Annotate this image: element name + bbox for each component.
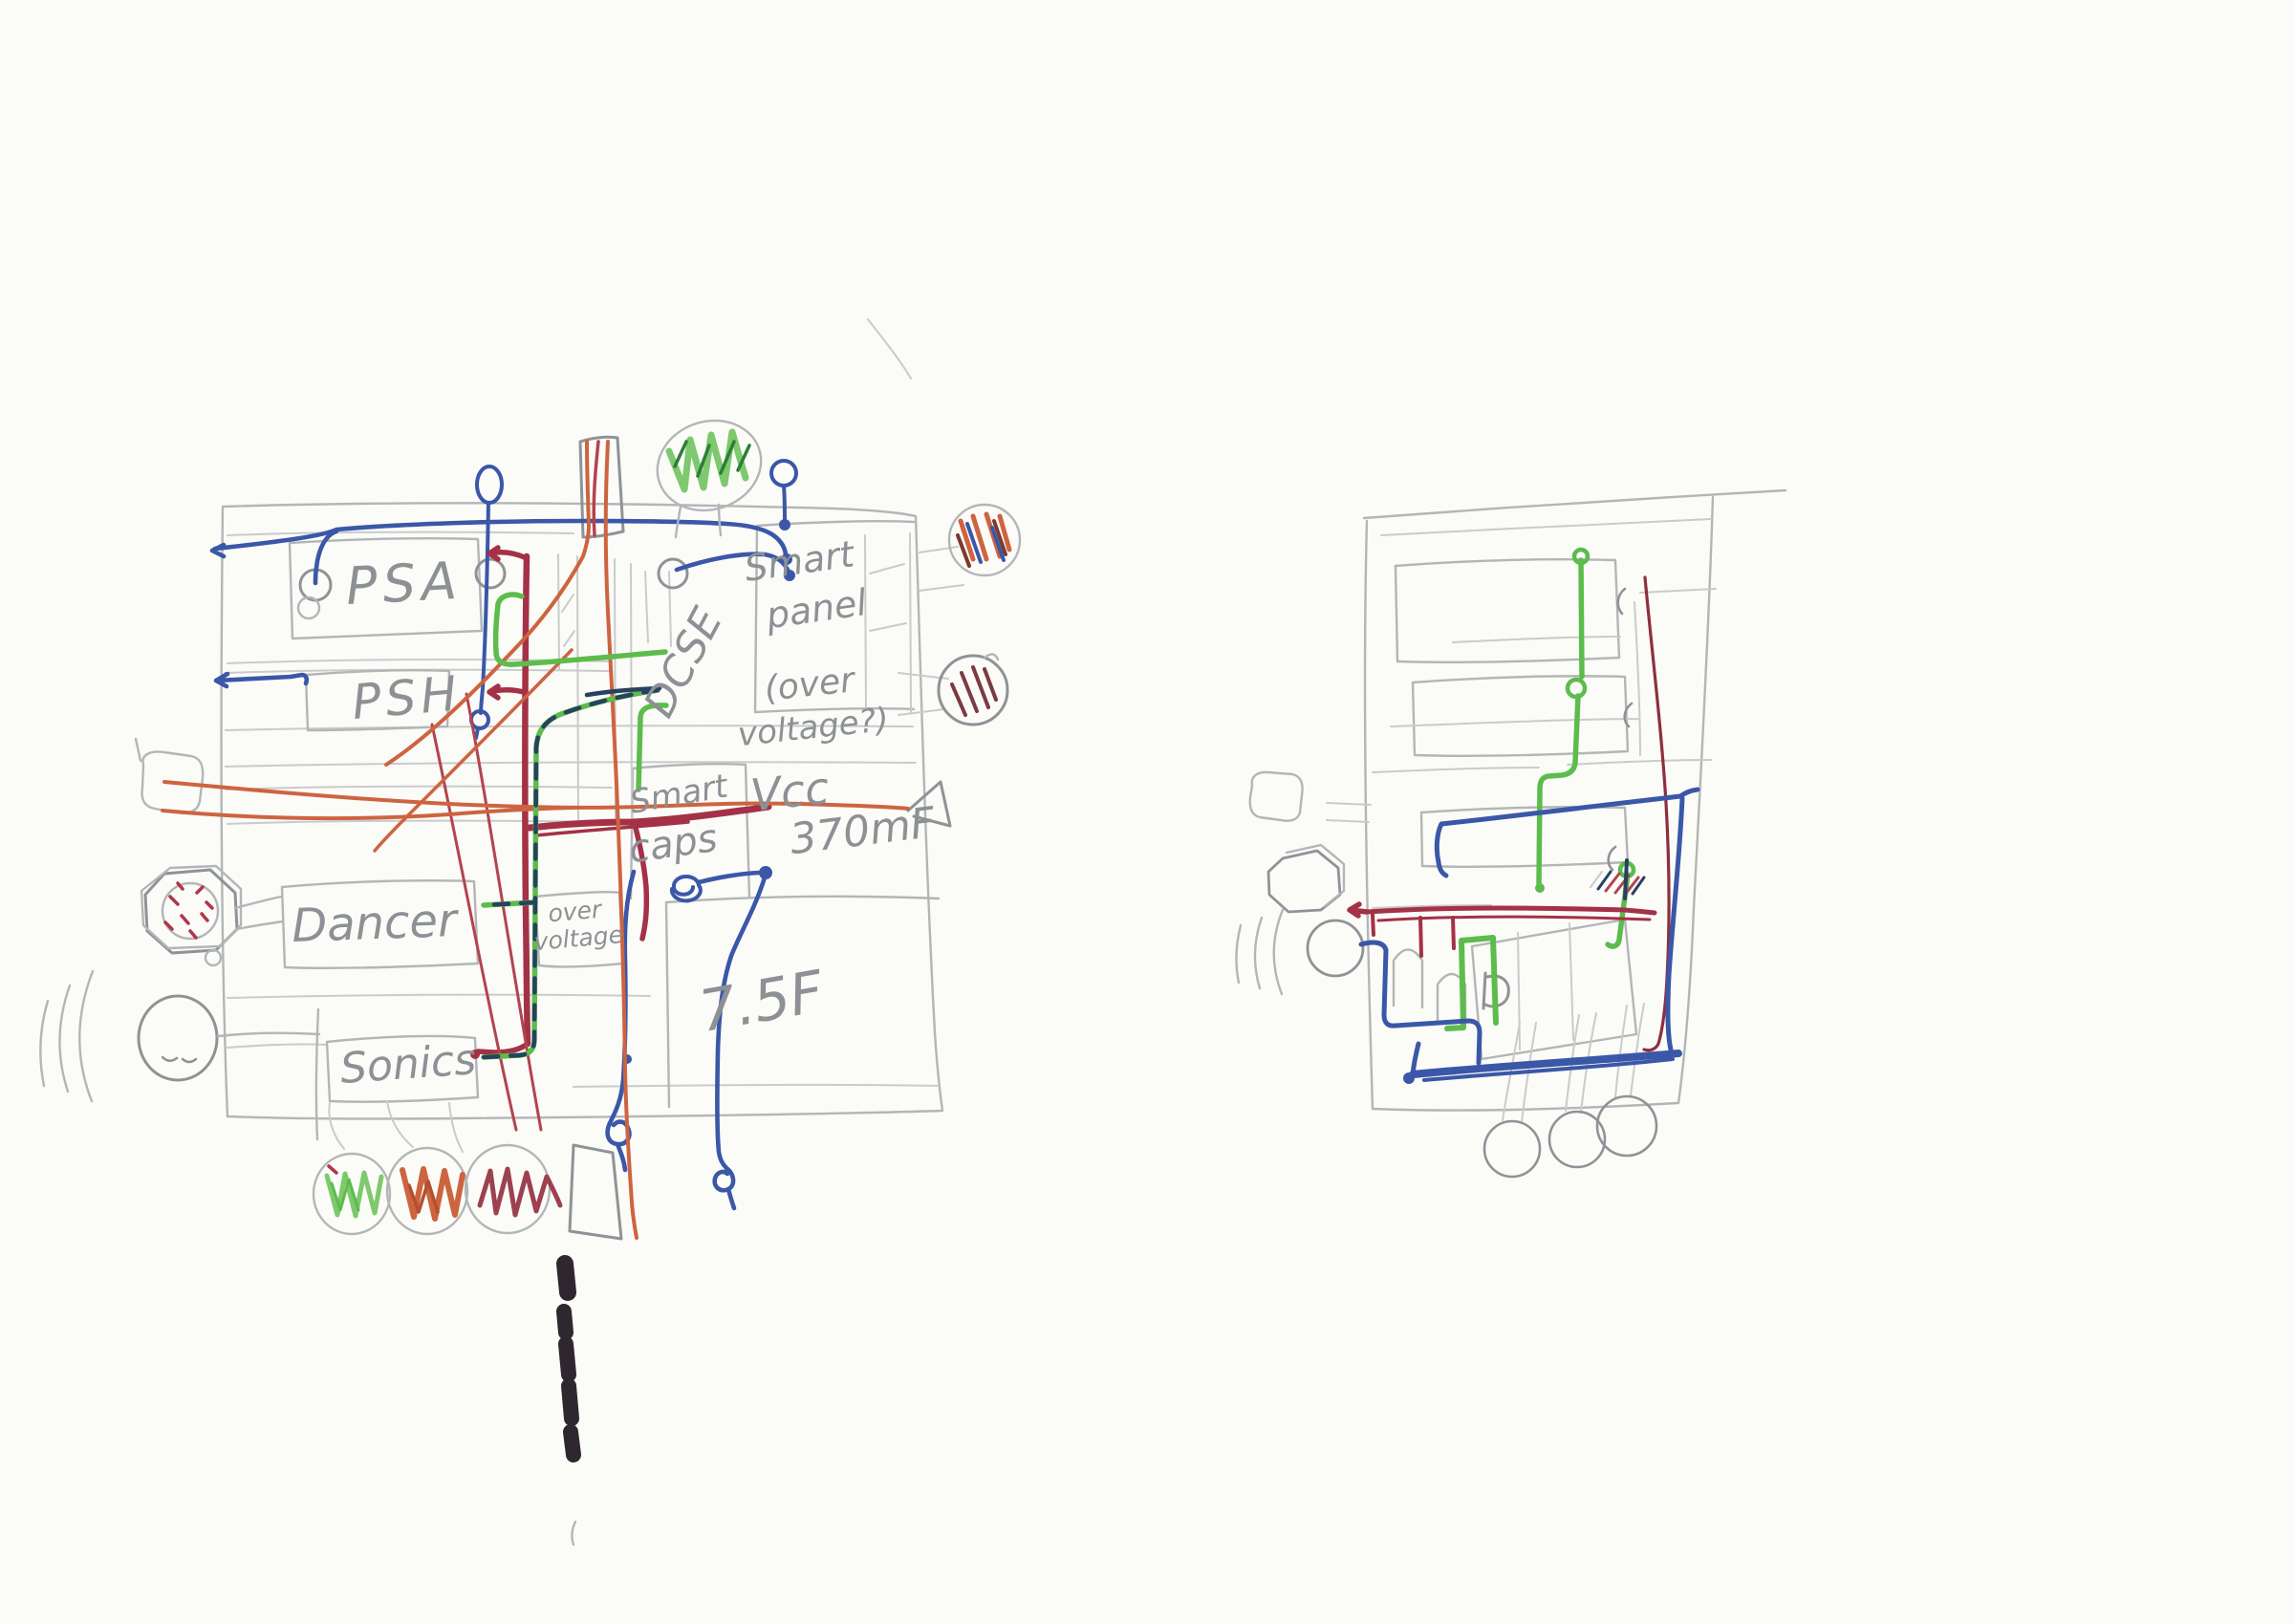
funnel-connector-bottom: [570, 1145, 621, 1239]
smart-panel-label-1: Smart: [742, 532, 858, 590]
green-hook-wire: [496, 595, 665, 664]
right-sound-wave-arcs: [1236, 910, 1283, 994]
green-bracket: [638, 705, 666, 790]
smart-panel-label-2: panel: [763, 581, 870, 637]
sketch-canvas: PSA PSH DCSE Smart panel (over voltage?)…: [0, 0, 2294, 1624]
blue-caps-blob: [672, 877, 701, 900]
right-green-wires: [1447, 550, 1634, 1029]
psa-terminal-circle-2: [298, 597, 319, 618]
hatched-terminal-top-right: [949, 505, 1020, 575]
red-grille-marks: [165, 883, 212, 938]
green-scribble-terminal-top: [645, 407, 772, 537]
right-box-2: [1413, 676, 1628, 756]
dcse-label: DCSE: [635, 600, 732, 725]
right-diagram: [1236, 490, 1785, 1177]
green-zigzag-wire: [1539, 560, 1582, 884]
psa-label: PSA: [344, 551, 464, 617]
red-horizontal-bus-right: [1367, 908, 1655, 913]
maroon-drop-wire: [1644, 577, 1669, 1050]
scribble-terminal-maroon: [465, 1145, 565, 1233]
right-outer-box: [1364, 490, 1785, 1111]
right-small-connector-box: [1250, 772, 1303, 821]
scribble-terminal-orange: [387, 1148, 467, 1234]
sonics-label: Sonics: [338, 1035, 477, 1093]
left-blob-connector: [136, 739, 203, 813]
right-arch-shapes: [1394, 950, 1465, 1026]
left-diagram: [40, 407, 1020, 1545]
orange-long-wire-2: [162, 808, 573, 818]
speaker-icon: [40, 971, 217, 1101]
scribble-terminal-green: [314, 1154, 390, 1234]
blue-top-wire: [215, 521, 786, 554]
pencil-scratch: [868, 319, 911, 379]
right-octagon-terminal: [1268, 845, 1344, 912]
octagon-terminal: [141, 866, 241, 953]
over-voltage-question-2: voltage?): [736, 701, 891, 754]
blue-upper-bus: [1437, 790, 1698, 1050]
right-speaker-icon: [1236, 910, 1363, 994]
psh-label: PSH: [350, 665, 464, 730]
speaker-lead-lines: [218, 1009, 319, 1139]
big-cap-label: 7.5F: [694, 958, 830, 1046]
scribble-stems: [329, 1101, 463, 1152]
red-diagonal-2: [466, 694, 541, 1130]
wire-terminal-circle-right: [659, 559, 687, 588]
red-vertical-bus: [525, 556, 528, 1044]
octagon-lead-lines: [235, 897, 283, 929]
blue-balloon-pin: [477, 466, 502, 503]
blue-stub-psh: [216, 674, 307, 686]
sound-wave-arcs: [40, 971, 93, 1101]
over-voltage-question-1: (over: [763, 660, 858, 709]
blue-pin-top: [771, 461, 796, 486]
right-box-1: [1396, 559, 1619, 662]
over-voltage-box-label-2: voltage: [532, 920, 624, 956]
small-terminal-circle: [206, 950, 221, 965]
right-c-marks: [1609, 589, 1632, 870]
scanned-sketch-page: PSA PSH DCSE Smart panel (over voltage?)…: [0, 0, 2294, 1624]
hatched-terminal-mid-right: [939, 654, 1007, 725]
right-pin-circles: [1484, 1004, 1656, 1177]
pencil-curl-mark: [572, 1522, 575, 1545]
marker-dash-line: [564, 1264, 573, 1455]
dancer-label: Dancer: [291, 894, 461, 953]
